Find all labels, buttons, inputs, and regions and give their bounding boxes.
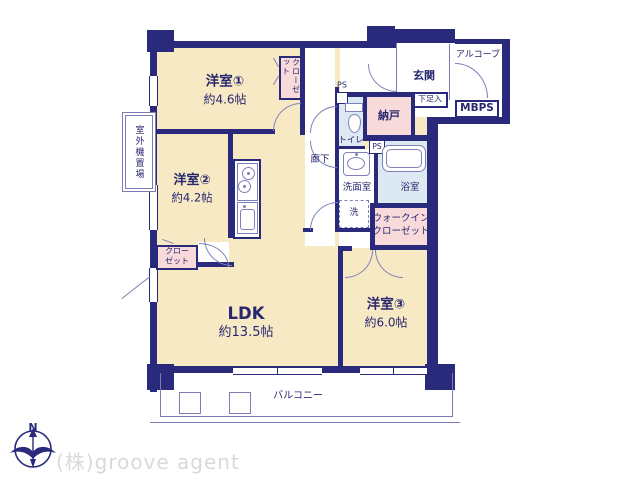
wall-segment [338, 248, 343, 368]
washbasin-faucet-dot [355, 153, 358, 156]
stove-burner-dot [243, 185, 246, 188]
wall-segment [393, 29, 455, 43]
door-arc [455, 63, 488, 98]
pipe-space-label: PS [372, 143, 381, 151]
balcony-label: バルコニー [273, 391, 323, 402]
wall-segment [335, 228, 374, 232]
wall-segment [346, 92, 420, 97]
washbasin-bowl [347, 157, 365, 170]
entrance-line [396, 43, 397, 92]
alcove-line [449, 44, 450, 100]
wall-segment [150, 41, 396, 48]
pipe-diagonal-line [122, 276, 151, 299]
closet1-box: クローゼット [279, 56, 302, 100]
laundry-label: 洗 [349, 209, 358, 219]
bathtub-inner [386, 149, 422, 168]
outdoor-unit-label: 室外機置場 [133, 125, 146, 180]
entrance-label: 玄関 [413, 70, 435, 82]
compass-north-icon: N [6, 416, 62, 474]
pillar [425, 364, 455, 390]
room2-name-label: 洋室② [173, 174, 210, 188]
wall-segment [430, 117, 510, 124]
bathroom-label: 浴室 [400, 183, 419, 193]
ldk-area-label: 約13.5帖 [219, 326, 274, 340]
ldk-name-label: LDK [228, 305, 265, 323]
wall-segment [153, 129, 275, 134]
room3-name-label: 洋室③ [367, 298, 405, 313]
toilet-tank-icon [345, 103, 363, 112]
kitchen-sink-basin [240, 209, 255, 230]
window-tick [277, 367, 278, 375]
washroom-label: 洗面室 [343, 183, 372, 193]
wall-segment [337, 146, 365, 149]
closet1-label: クローゼット [281, 58, 301, 98]
balcony-unit-square [179, 392, 201, 414]
wall-segment [370, 203, 428, 208]
alcove-label: アルコーブ [456, 51, 500, 61]
toilet-label: トイレ [338, 136, 364, 145]
walk-in-closet-label: クローゼット [372, 227, 429, 237]
shoe-box-label: 下足入 [418, 96, 442, 105]
window-tick [393, 367, 394, 375]
entrance-floor [340, 41, 455, 92]
room3-area-label: 約6.0帖 [364, 316, 407, 329]
pillar [367, 26, 395, 48]
company-watermark: (株)groove agent [56, 446, 240, 475]
balcony-rail [452, 373, 453, 417]
wall-segment [502, 39, 510, 124]
outdoor-unit-box: 室外機置場 [122, 112, 156, 192]
balcony-unit-square [229, 392, 251, 414]
room2-area-label: 約4.2帖 [171, 192, 212, 205]
storage-label: 納戸 [378, 110, 400, 122]
balcony-outer-line [150, 422, 460, 423]
closet2-label: ゼット [165, 258, 189, 267]
kitchen-faucet-dot [243, 205, 246, 208]
wall-segment [363, 95, 367, 139]
balcony-rail [160, 416, 453, 417]
window [149, 76, 158, 106]
walk-in-closet-label: ウォークイン [372, 214, 429, 224]
pipe-space-label: PS [337, 82, 347, 91]
outdoor-unit-inner: 室外機置場 [125, 115, 153, 189]
wall-segment [455, 39, 508, 44]
wall-segment [427, 117, 438, 373]
hallway-label: 廊下 [310, 155, 329, 165]
floorplan-canvas: クローゼット 室外機置場 洋室① 約4.6帖 洋室② 約4.2帖 洋室③ 約6 [0, 0, 640, 480]
room1-area-label: 約4.6帖 [203, 93, 246, 106]
balcony-rail [160, 373, 161, 417]
room1-name-label: 洋室① [206, 75, 244, 90]
window [149, 268, 158, 302]
closet2-label: クロー [165, 248, 189, 257]
stove-burner-dot [247, 172, 250, 175]
mbps-label: MBPS [460, 103, 494, 115]
